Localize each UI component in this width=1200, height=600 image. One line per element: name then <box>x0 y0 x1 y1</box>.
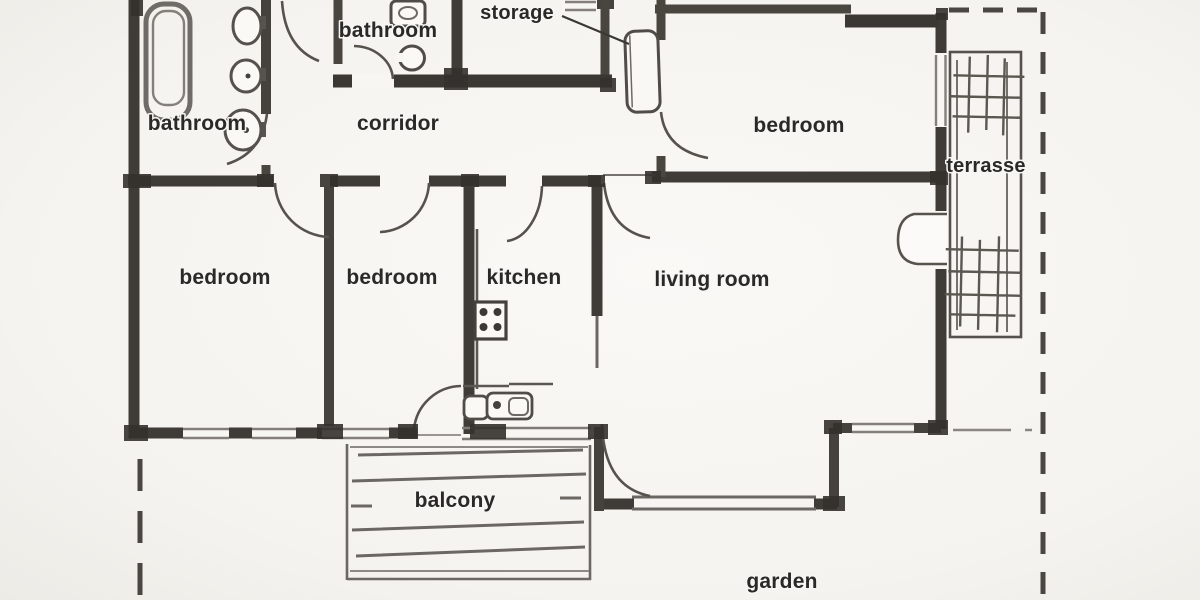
sink-icon <box>233 8 261 44</box>
door-arc-top-cut <box>282 1 319 61</box>
label-bedroom-left: bedroom <box>179 266 270 289</box>
label-balcony: balcony <box>415 489 496 512</box>
label-corridor: corridor <box>357 112 439 135</box>
door-arc-balcony <box>414 386 461 429</box>
label-bedroom-middle: bedroom <box>346 266 437 289</box>
bathtub-inner-line <box>153 11 184 105</box>
floor-plan-canvas: bathroom corridor bathroom storage bedro… <box>0 0 1200 600</box>
kitchen-fixtures <box>463 229 553 419</box>
burner-dot <box>480 308 488 316</box>
label-garden: garden <box>746 570 817 593</box>
label-bathroom-left: bathroom <box>148 112 246 135</box>
balcony-deck <box>347 444 591 580</box>
terrasse-deck <box>944 52 1027 337</box>
door-arc-bedroom-top-right <box>661 112 708 158</box>
burner-dot <box>480 323 488 331</box>
door-arc-bedroom-middle <box>380 183 429 232</box>
stove-icon <box>475 302 506 339</box>
door-arc-living-room <box>604 183 650 238</box>
door-gap-bathroom-top <box>352 74 394 88</box>
door-arc-kitchen <box>507 186 542 241</box>
floor-plan-sketch: bathroom corridor bathroom storage bedro… <box>0 0 1200 600</box>
label-kitchen: kitchen <box>487 266 562 289</box>
drain-dot <box>246 74 251 79</box>
terrasse-door-leaf <box>898 214 947 264</box>
storage-pointer-line <box>562 16 629 44</box>
sink-counter-small <box>464 396 488 419</box>
label-storage: storage <box>480 2 554 24</box>
faucet-dot <box>493 401 501 409</box>
label-terrasse: terrasse <box>946 155 1025 177</box>
burner-dot <box>494 323 502 331</box>
window-frame-lines <box>183 2 946 438</box>
label-bedroom-top-right: bedroom <box>753 114 844 137</box>
balcony-outline <box>347 444 591 580</box>
storage-closet <box>625 30 661 112</box>
door-arc-garden <box>602 424 650 496</box>
label-living-room: living room <box>654 268 769 291</box>
burner-dot <box>494 308 502 316</box>
label-bathroom-top: bathroom <box>339 19 437 42</box>
terrasse-vertical-lines <box>957 60 1007 332</box>
door-arc-bedroom-left <box>275 183 329 237</box>
window-garden-wall <box>632 497 816 509</box>
toilet-opening <box>396 53 404 62</box>
terrasse-long-lines <box>957 60 1007 332</box>
room-labels: bathroom corridor bathroom storage bedro… <box>148 2 1026 593</box>
